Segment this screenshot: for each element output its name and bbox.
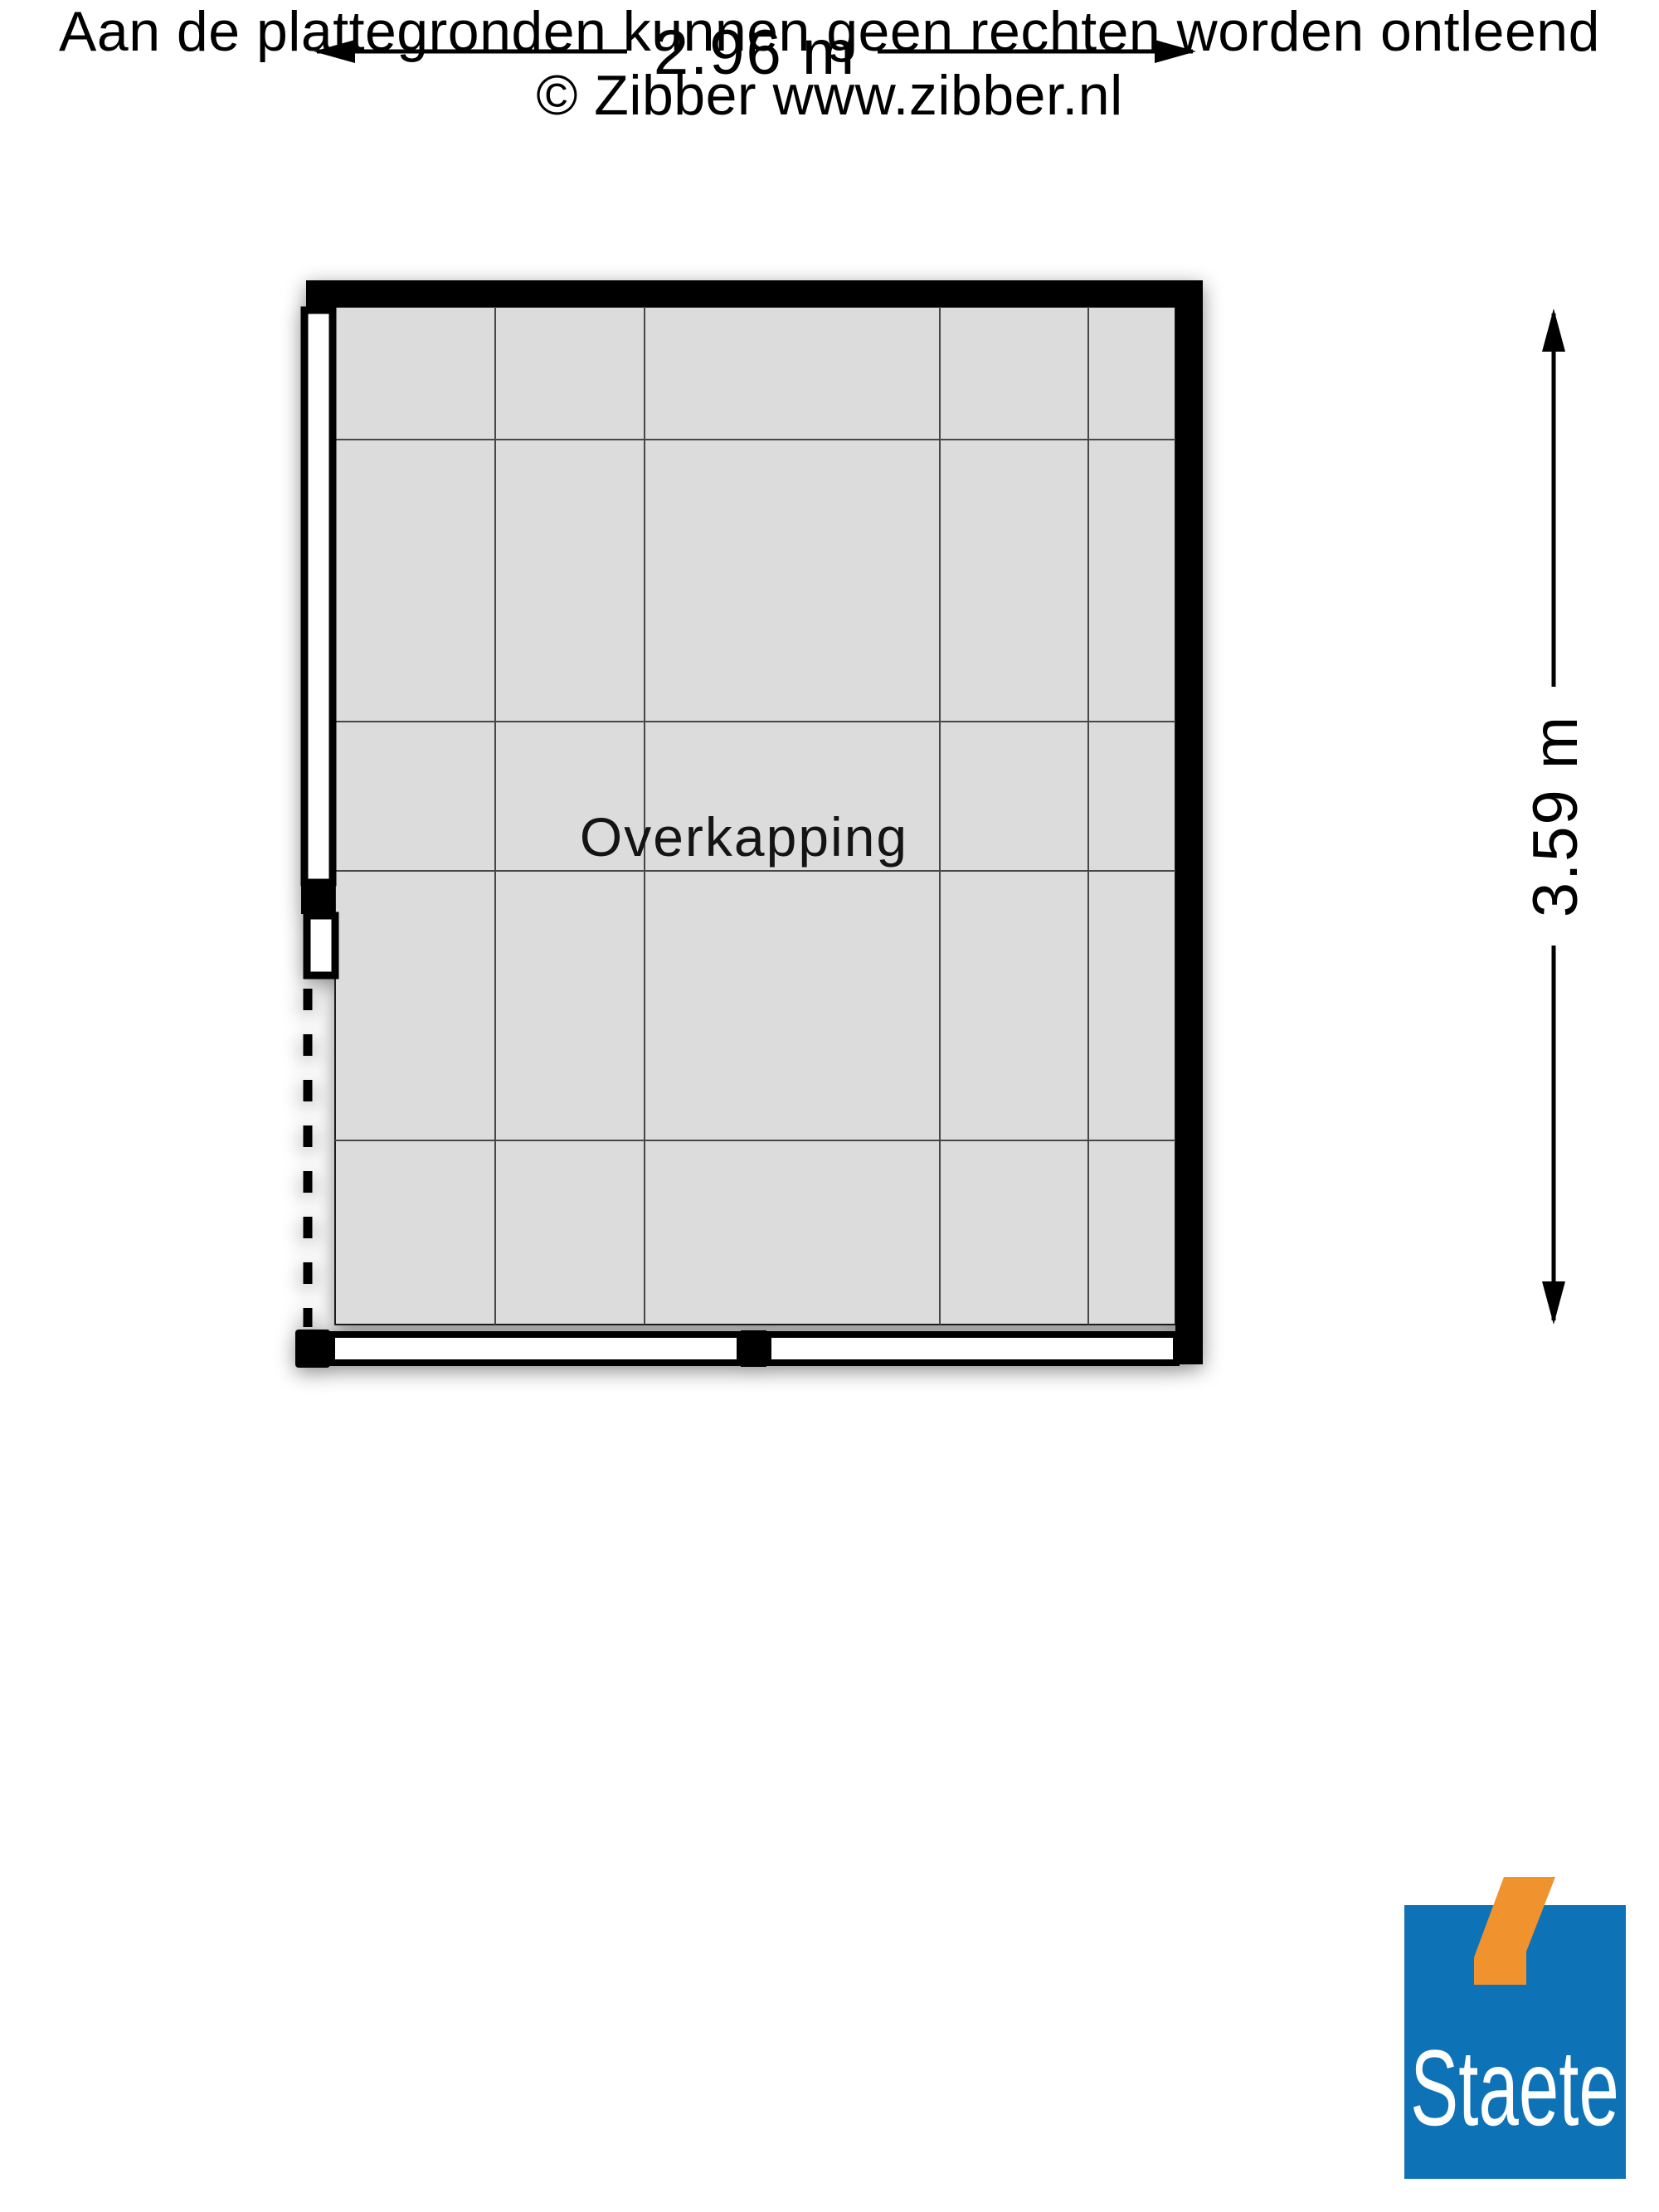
logo-brand-text: Staete xyxy=(1410,2029,1619,2149)
bottom-fence-left xyxy=(332,1334,740,1363)
right-wall xyxy=(1175,280,1203,1364)
window-left-small xyxy=(307,916,335,975)
top-wall xyxy=(306,280,1203,307)
window-left-tall xyxy=(304,310,333,882)
disclaimer-line1: Aan de plattegronden kunnen geen rechten… xyxy=(0,0,1659,64)
post-middle xyxy=(741,1330,766,1367)
left-wall-segment xyxy=(301,882,335,914)
room-label: Overkapping xyxy=(580,806,908,868)
floorplan-page: Overkapping 2.96 m 3.59 m Aan de platteg… xyxy=(0,0,1659,2212)
disclaimer: Aan de plattegronden kunnen geen rechten… xyxy=(0,0,1659,128)
arrowhead-up-icon xyxy=(1542,309,1565,352)
bottom-fence-right xyxy=(768,1334,1176,1363)
arrowhead-down-icon xyxy=(1542,1281,1565,1325)
staete-logo: Staete xyxy=(1394,1874,1659,2212)
height-dimension-label: 3.59 m xyxy=(1520,715,1591,917)
disclaimer-line2: © Zibber www.zibber.nl xyxy=(0,64,1659,128)
post-left xyxy=(295,1330,330,1368)
